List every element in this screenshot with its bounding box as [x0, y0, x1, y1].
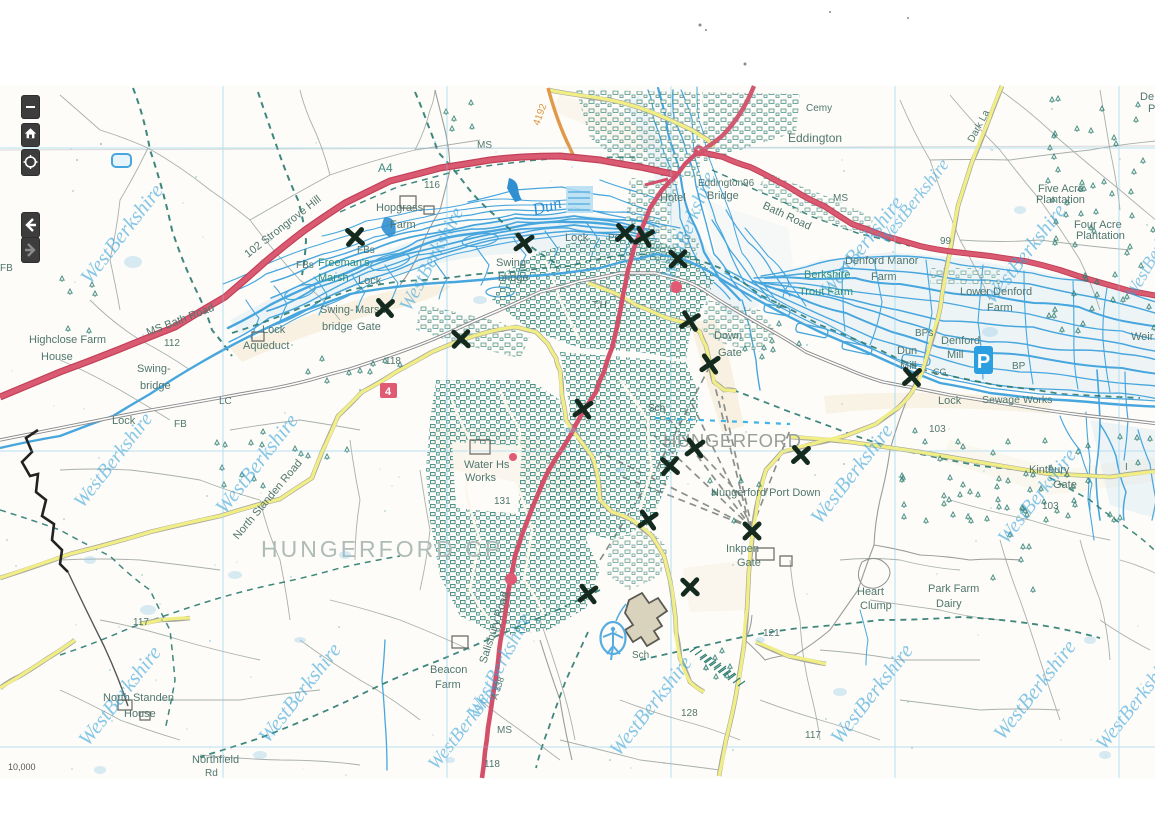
- svg-text:Kintbury: Kintbury: [1029, 464, 1070, 476]
- svg-text:MS: MS: [833, 193, 848, 204]
- svg-text:MS: MS: [477, 140, 492, 151]
- svg-text:FBs: FBs: [296, 260, 314, 271]
- svg-text:131: 131: [494, 496, 511, 507]
- svg-text:Aqueduct: Aqueduct: [243, 340, 289, 352]
- svg-text:118: 118: [484, 759, 500, 770]
- svg-text:Denford Manor: Denford Manor: [845, 255, 919, 267]
- svg-text:House: House: [41, 351, 73, 363]
- svg-text:Swing: Swing: [496, 257, 526, 269]
- svg-text:Sch: Sch: [648, 403, 665, 414]
- svg-text:Lock: Lock: [112, 415, 136, 427]
- svg-text:bridge: bridge: [498, 272, 529, 284]
- svg-text:Freeman's: Freeman's: [318, 257, 370, 269]
- svg-text:Eddington96: Eddington96: [698, 178, 755, 189]
- svg-text:I: I: [1125, 462, 1128, 473]
- svg-text:Lower Denford: Lower Denford: [960, 286, 1032, 298]
- svg-text:Weir: Weir: [1131, 331, 1154, 343]
- svg-text:4: 4: [385, 386, 392, 398]
- svg-text:De: De: [1140, 91, 1154, 103]
- svg-text:FBs: FBs: [357, 245, 375, 256]
- svg-text:Beacon: Beacon: [430, 664, 467, 676]
- svg-text:P: P: [1148, 103, 1155, 115]
- svg-text:Swing-: Swing-: [320, 304, 354, 316]
- svg-text:House: House: [124, 708, 156, 720]
- svg-text:HUNGERFORD: HUNGERFORD: [663, 430, 802, 451]
- svg-text:BPs: BPs: [915, 328, 933, 339]
- svg-text:CG: CG: [933, 367, 947, 377]
- svg-text:Northfield: Northfield: [192, 754, 239, 766]
- svg-text:Cemy: Cemy: [806, 103, 832, 114]
- svg-text:Gate: Gate: [737, 557, 761, 569]
- svg-text:MS: MS: [497, 725, 512, 736]
- svg-text:Gate: Gate: [357, 321, 381, 333]
- svg-text:Park Farm: Park Farm: [928, 583, 979, 595]
- svg-text:LC: LC: [219, 396, 232, 407]
- svg-text:Hopgrass: Hopgrass: [376, 202, 424, 214]
- svg-text:10,000: 10,000: [8, 762, 36, 772]
- svg-text:103: 103: [1042, 501, 1059, 512]
- svg-text:Mill: Mill: [947, 349, 964, 361]
- svg-text:Lock: Lock: [938, 395, 962, 407]
- svg-text:Hungerford Port Down: Hungerford Port Down: [711, 487, 820, 499]
- svg-text:T.H: T.H: [592, 300, 607, 311]
- svg-text:bridge: bridge: [140, 380, 171, 392]
- svg-text:Dairy: Dairy: [936, 598, 962, 610]
- svg-text:FB: FB: [174, 419, 187, 430]
- svg-text:Gate: Gate: [718, 347, 742, 359]
- svg-text:128: 128: [681, 708, 698, 719]
- svg-text:Swing-: Swing-: [137, 363, 171, 375]
- svg-text:Sch: Sch: [632, 650, 649, 661]
- svg-text:112: 112: [164, 338, 180, 349]
- svg-text:Inkpen: Inkpen: [726, 543, 759, 555]
- svg-text:Dun: Dun: [897, 345, 917, 357]
- svg-text:HUNGERFORD CP: HUNGERFORD CP: [261, 536, 503, 562]
- svg-text:A4: A4: [378, 161, 393, 175]
- svg-text:Berkshire: Berkshire: [804, 269, 850, 281]
- svg-text:99: 99: [940, 236, 952, 247]
- svg-text:Lock: Lock: [262, 324, 286, 336]
- svg-text:Highclose Farm: Highclose Farm: [29, 334, 106, 346]
- svg-text:Heart: Heart: [857, 586, 884, 598]
- svg-text:117: 117: [805, 730, 821, 741]
- svg-text:Sewage Works: Sewage Works: [982, 394, 1052, 406]
- svg-text:118: 118: [385, 356, 401, 367]
- svg-text:116: 116: [424, 180, 440, 191]
- svg-text:bridge: bridge: [322, 321, 353, 333]
- svg-text:Farm: Farm: [435, 679, 461, 691]
- svg-text:Lock: Lock: [565, 232, 589, 244]
- svg-text:Lock: Lock: [358, 275, 382, 287]
- svg-text:Down: Down: [714, 330, 742, 342]
- svg-text:121: 121: [763, 628, 780, 639]
- svg-text:103: 103: [929, 424, 946, 435]
- svg-text:North Standen: North Standen: [103, 692, 174, 704]
- svg-text:Clump: Clump: [860, 600, 892, 612]
- svg-text:Eddington: Eddington: [788, 131, 842, 145]
- svg-text:Works: Works: [465, 472, 496, 484]
- svg-text:Gate: Gate: [1053, 479, 1077, 491]
- svg-text:Farm: Farm: [987, 302, 1013, 314]
- svg-text:Bridge: Bridge: [707, 190, 739, 202]
- svg-text:Farm: Farm: [871, 271, 897, 283]
- svg-text:BP: BP: [1012, 361, 1026, 372]
- svg-text:Plantation: Plantation: [1036, 194, 1085, 206]
- svg-text:P: P: [977, 351, 990, 373]
- svg-text:Plantation: Plantation: [1076, 230, 1125, 242]
- svg-text:FB: FB: [0, 263, 13, 274]
- svg-text:Rd: Rd: [205, 768, 218, 779]
- svg-text:Farm: Farm: [390, 219, 416, 231]
- svg-text:Hotel: Hotel: [660, 192, 686, 204]
- svg-text:Denford: Denford: [941, 335, 980, 347]
- svg-text:Water Hs: Water Hs: [464, 459, 510, 471]
- svg-text:Marsh: Marsh: [318, 272, 349, 284]
- svg-text:117: 117: [133, 617, 149, 628]
